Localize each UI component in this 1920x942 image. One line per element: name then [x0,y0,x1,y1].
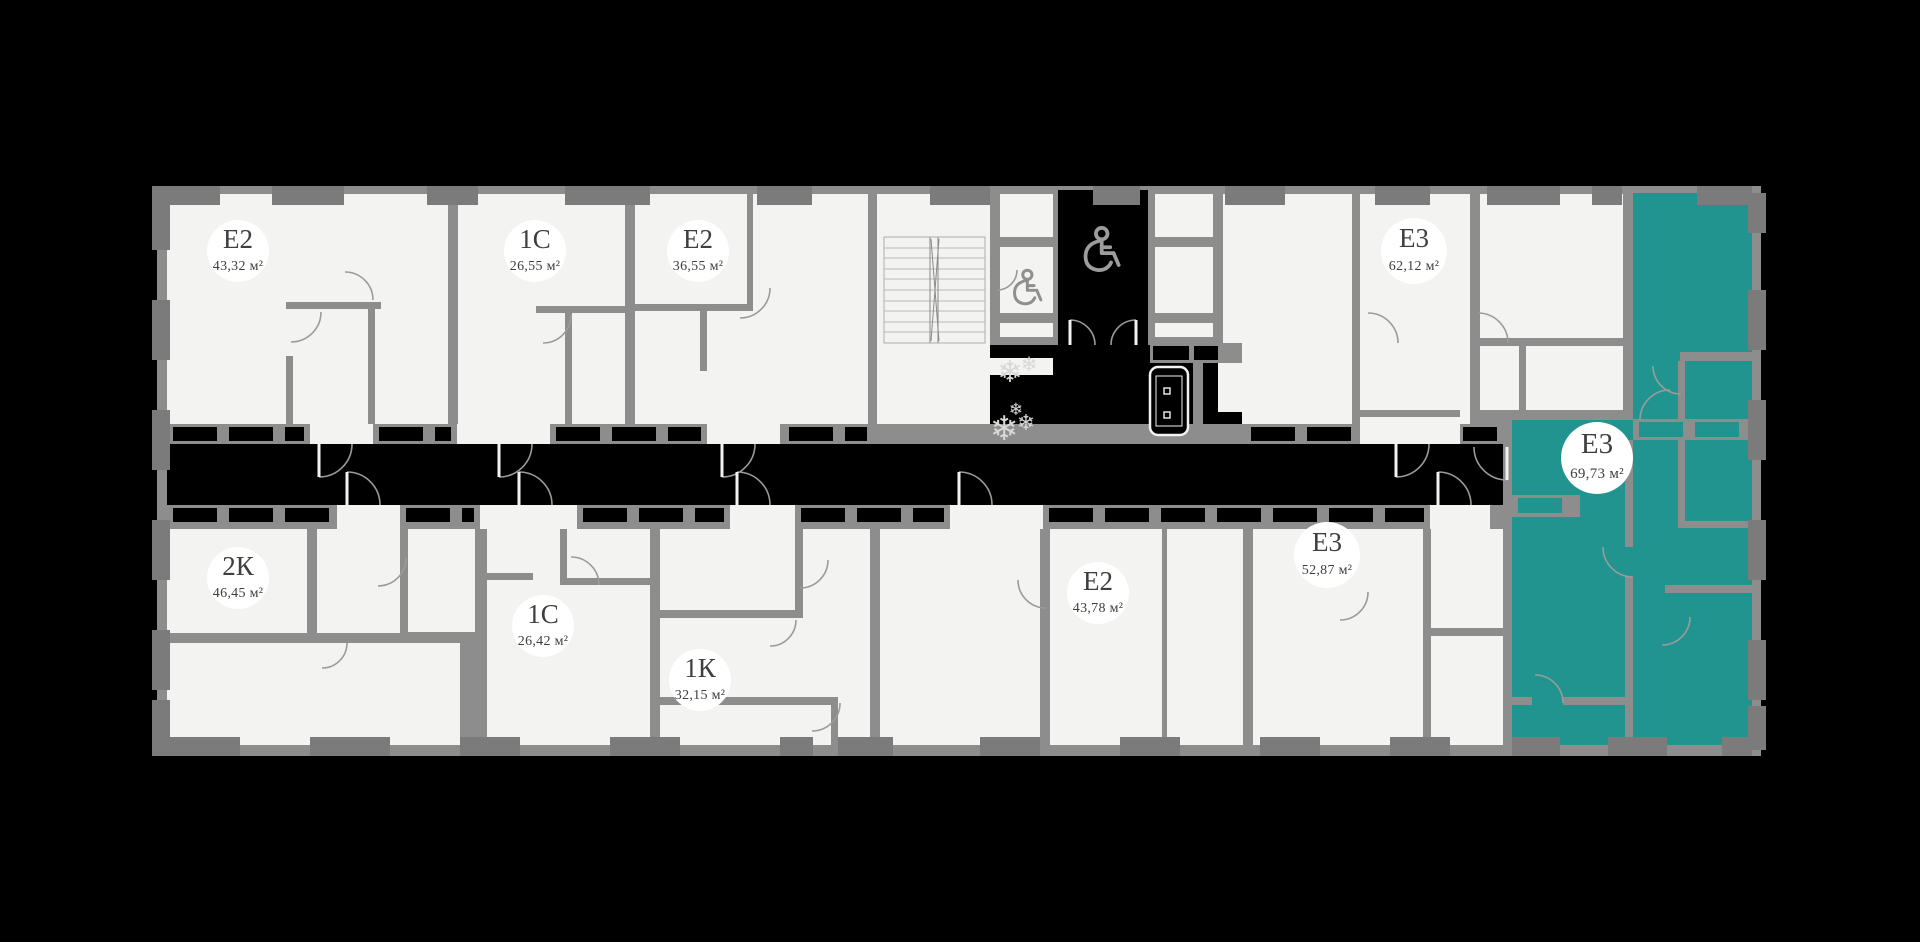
svg-text:❄: ❄ [1021,352,1038,376]
svg-text:62,12 м²: 62,12 м² [1389,259,1439,274]
niche-cell [229,508,273,522]
apartment-label-a5-highlighted[interactable]: Е3 69,73 м² [1561,422,1633,494]
niche-cell [1251,427,1295,441]
svg-text:46,45 м²: 46,45 м² [213,586,263,601]
niche-cell [1105,508,1149,522]
apartment-label-a4[interactable]: Е3 62,12 м² [1381,218,1447,284]
niche-cell [556,427,600,441]
svg-text:26,55 м²: 26,55 м² [510,259,560,274]
svg-text:43,32 м²: 43,32 м² [213,259,263,274]
svg-text:52,87 м²: 52,87 м² [1302,563,1352,578]
niche-cell [1518,498,1562,513]
apartment-b4[interactable] [880,529,1243,745]
niche-cell [612,427,656,441]
apartment-label-a3[interactable]: Е2 36,55 м² [667,220,729,282]
niche-cell [583,508,627,522]
niche-cell [285,427,304,441]
niche-cell [913,508,944,522]
niche-cell [1217,508,1261,522]
svg-text:32,15 м²: 32,15 м² [675,688,725,703]
niche-cell [285,508,329,522]
niche-cell [406,508,450,522]
niche-cell [789,427,833,441]
apartment-label-b3[interactable]: 1К 32,15 м² [669,649,731,711]
svg-text:36,55 м²: 36,55 м² [673,259,723,274]
staircase [884,237,985,343]
apartment-label-a1[interactable]: Е2 43,32 м² [207,220,269,282]
svg-text:69,73 м²: 69,73 м² [1570,466,1624,482]
svg-text:Е2: Е2 [683,224,713,254]
svg-text:2К: 2К [222,551,255,581]
svg-text:1К: 1К [684,653,717,683]
niche-cell [173,427,217,441]
apartment-label-b1[interactable]: 2К 46,45 м² [207,547,269,609]
niche-cell [1307,427,1351,441]
floorplan-canvas: ❄ ❄ ❄ ❄ ❄ Е2 43,32 м² 1С 26,55 м² Е2 36,… [0,0,1920,942]
svg-text:Е3: Е3 [1312,527,1342,557]
niche-cell [229,427,273,441]
niche-cell [435,427,451,441]
apartment-label-b5[interactable]: Е3 52,87 м² [1294,522,1360,588]
apartment-label-a2[interactable]: 1С 26,55 м² [504,220,566,282]
svg-text:❄: ❄ [997,355,1022,390]
svg-text:1С: 1С [527,599,559,629]
niche-cell [857,508,901,522]
niche-cell [1639,422,1683,437]
bench-icon [1150,367,1188,435]
svg-text:43,78 м²: 43,78 м² [1073,601,1123,616]
svg-text:Е2: Е2 [223,224,253,254]
svg-text:26,42 м²: 26,42 м² [518,634,568,649]
apartment-b5[interactable] [1253,529,1503,745]
apartment-label-b2[interactable]: 1С 26,42 м² [512,595,574,657]
niche-cell [1385,508,1424,522]
svg-text:❄: ❄ [1009,400,1023,420]
niche-cell [668,427,701,441]
niche-cell [462,508,474,522]
niche-cell [173,508,217,522]
svg-text:Е3: Е3 [1581,428,1613,460]
niche-cell [845,427,867,441]
niche-cell [1161,508,1205,522]
niche-cell [1329,508,1373,522]
niche-cell [379,427,423,441]
svg-text:Е2: Е2 [1083,566,1113,596]
svg-text:1С: 1С [519,224,551,254]
niche-cell [639,508,683,522]
apartment-label-b4[interactable]: Е2 43,78 м² [1067,562,1129,624]
niche-cell [1695,422,1739,437]
niche-cell [695,508,724,522]
niche-cell [1273,508,1317,522]
svg-text:Е3: Е3 [1399,223,1429,253]
niche-cell [1049,508,1093,522]
niche-cell [801,508,845,522]
niche-cell [1463,427,1497,441]
